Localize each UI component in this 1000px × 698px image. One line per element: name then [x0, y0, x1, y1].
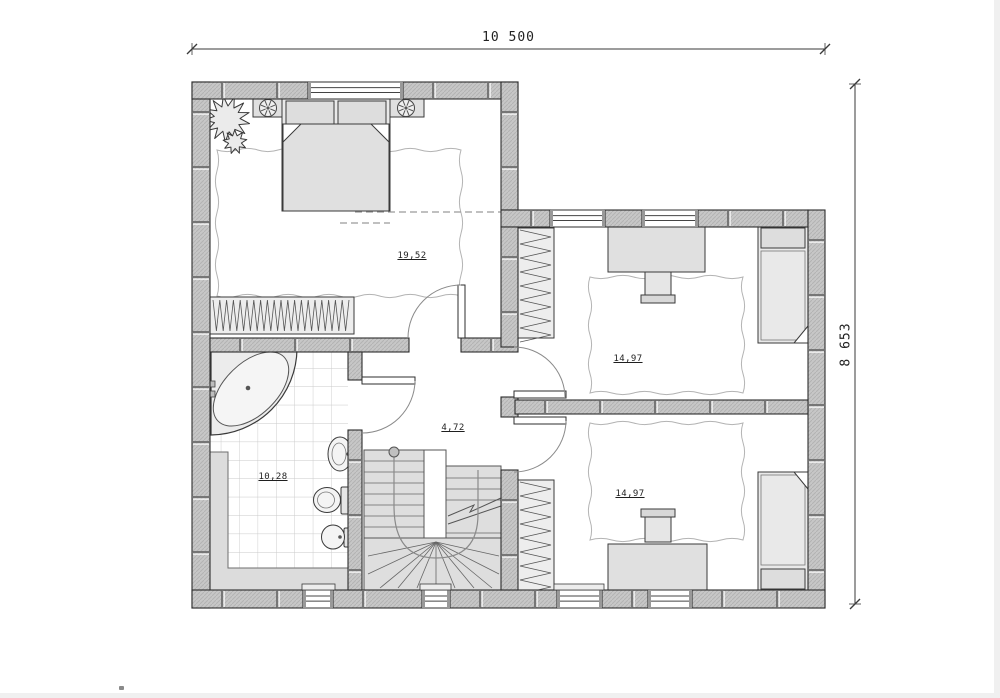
door-swing-arc	[514, 347, 565, 397]
window-sill	[420, 584, 451, 590]
window	[648, 590, 692, 608]
print-artifact-dot	[119, 686, 124, 690]
pillow	[286, 101, 334, 124]
door-swing-arc	[362, 381, 415, 433]
blanket	[283, 124, 389, 211]
desk	[608, 544, 707, 590]
window-sill	[554, 584, 604, 590]
desk	[608, 227, 705, 272]
stair-newel-post	[389, 447, 399, 457]
room-area-label-hall: 4,72	[441, 423, 464, 433]
window-sill	[302, 584, 335, 590]
window	[422, 590, 450, 608]
door-leaf	[514, 391, 566, 398]
window	[557, 590, 602, 608]
door-leaf	[362, 377, 415, 384]
chair	[645, 516, 671, 542]
floor-plan-page: 10 500 8 653 19,52 14,97 14,97 4,72 10,2…	[0, 0, 1000, 698]
door-leaf	[514, 417, 566, 424]
dimension-height-label: 8 653	[839, 309, 854, 381]
room-area-label-bedroom-top-right: 14,97	[613, 354, 642, 364]
window	[642, 210, 698, 227]
window	[303, 590, 333, 608]
room-area-label-master-bedroom: 19,52	[397, 251, 426, 261]
room-area-label-bedroom-bottom-right: 14,97	[615, 489, 644, 499]
chair-back	[641, 509, 675, 517]
page-edge-right	[994, 0, 1000, 698]
door-swing-arc	[514, 421, 566, 472]
pillow	[761, 569, 805, 589]
window	[308, 82, 403, 99]
pillow	[338, 101, 386, 124]
staircase	[364, 447, 501, 590]
plant	[204, 96, 250, 142]
dimension-width-label: 10 500	[192, 30, 825, 45]
pillow	[761, 228, 805, 248]
chair-back	[641, 295, 675, 303]
door-swing-arc	[408, 285, 461, 338]
door-leaf	[458, 285, 465, 338]
window	[550, 210, 605, 227]
chair	[645, 272, 671, 298]
room-area-label-bathroom: 10,28	[258, 472, 287, 482]
page-edge-bottom	[0, 693, 1000, 698]
